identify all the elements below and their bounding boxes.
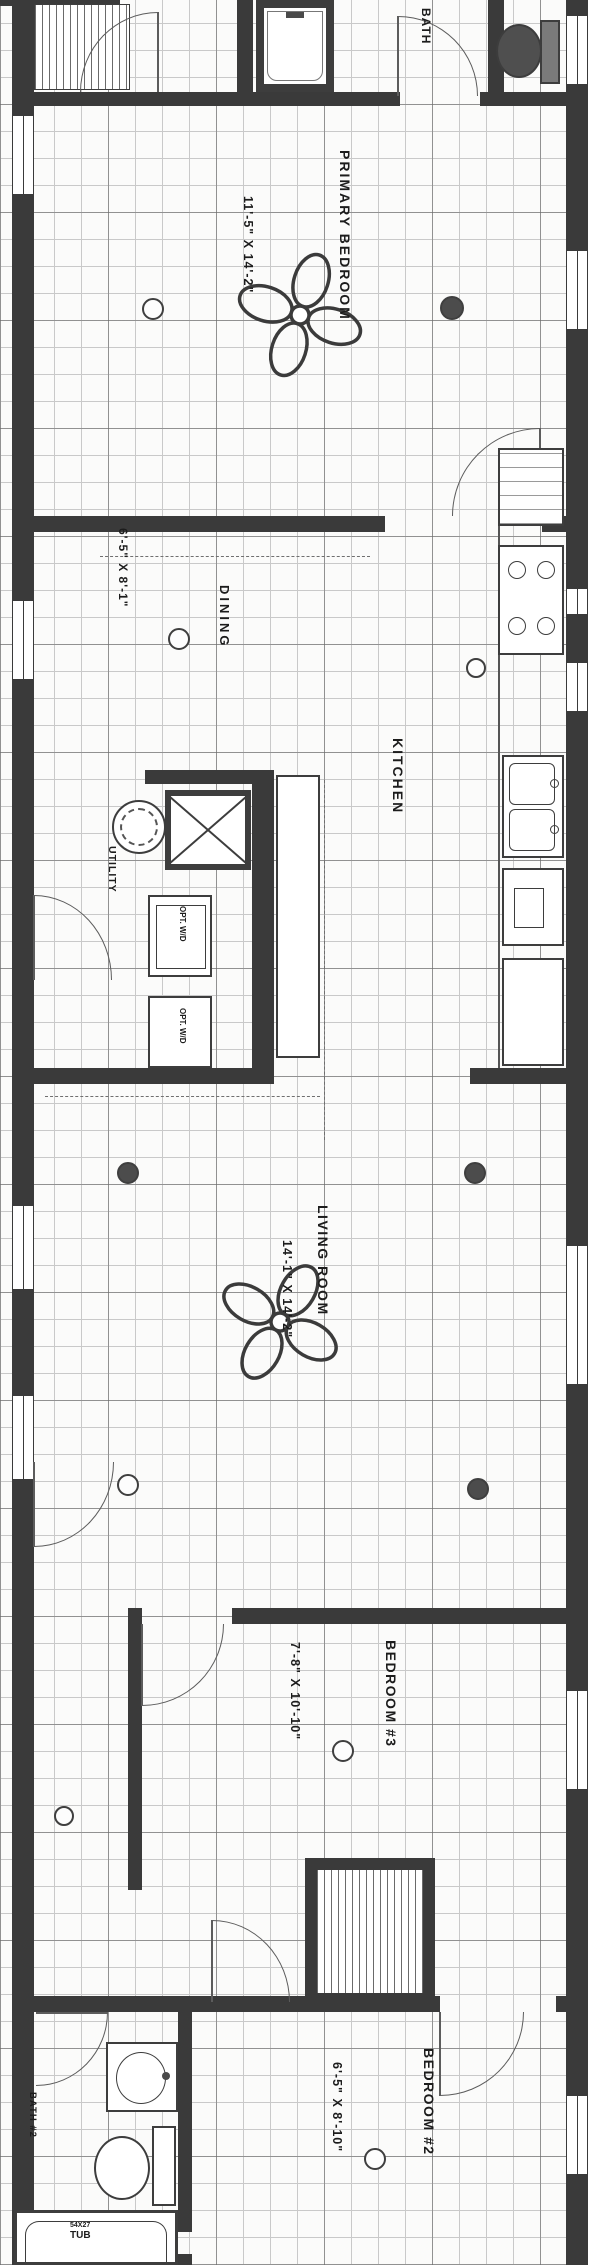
room-dims-living-room: 14'-1" X 14'-2" xyxy=(281,1240,294,1338)
closet-wall-bottom xyxy=(305,1993,435,2005)
room-label-dining: DINING xyxy=(218,585,231,649)
counter-edge xyxy=(498,448,500,1068)
door-leaf xyxy=(36,2012,108,2014)
ceiling-break-line xyxy=(100,556,370,557)
burner-icon xyxy=(508,561,526,579)
wall-bath-bedroom-right xyxy=(480,92,566,106)
window xyxy=(566,15,588,85)
refrigerator xyxy=(498,448,564,526)
window xyxy=(12,115,34,195)
shower-valve-icon xyxy=(286,12,304,18)
faucet-icon xyxy=(162,2072,170,2080)
furnace xyxy=(165,790,251,870)
wall-bedroom3-top xyxy=(232,1608,566,1624)
exterior-wall-left xyxy=(12,0,34,2265)
base-cabinet xyxy=(502,958,564,1066)
door-leaf xyxy=(439,2012,441,2096)
room-label-bedroom-3: BEDROOM #3 xyxy=(384,1640,398,1748)
exterior-wall-right xyxy=(566,0,588,2265)
closet-wall-left xyxy=(305,1858,317,2005)
room-label-bedroom-2: BEDROOM #2 xyxy=(422,2048,436,2156)
floor-plan-scan: BATH PRIMARY BEDROOM 11'-5" X 14'-2" DIN… xyxy=(0,0,600,2265)
dishwasher xyxy=(502,868,564,946)
window xyxy=(566,1245,588,1385)
ceiling-light-icon xyxy=(332,1740,354,1762)
toilet-tank-icon xyxy=(540,20,560,84)
wardrobe-closet xyxy=(317,1870,423,1993)
window xyxy=(566,1690,588,1790)
wall-utility-bottom xyxy=(12,1068,274,1084)
bathtub xyxy=(14,2210,178,2265)
room-dims-primary-bedroom: 11'-5" X 14'-2" xyxy=(242,196,255,293)
sink-basin-icon xyxy=(509,763,555,805)
ceiling-break-line xyxy=(45,1096,320,1097)
sink-basin-icon xyxy=(116,2052,166,2104)
sink-basin-icon xyxy=(509,809,555,851)
wall-bath-bedroom-left xyxy=(12,92,400,106)
closet-wall-top xyxy=(305,1858,435,1870)
shower-pan xyxy=(267,11,323,81)
ceiling-light-icon xyxy=(364,2148,386,2170)
door-leaf xyxy=(211,1920,213,2002)
door-leaf xyxy=(157,12,159,92)
tub-label: TUB xyxy=(70,2231,91,2241)
water-heater-icon xyxy=(112,800,166,854)
room-label-living-room: LIVING ROOM xyxy=(316,1205,330,1316)
tub-size-label: 54X27 xyxy=(70,2222,90,2229)
room-dims-bedroom-3: 7'-8" X 10'-10" xyxy=(289,1642,302,1740)
wall-closet-shower xyxy=(237,0,253,100)
ceiling-light-icon xyxy=(466,658,486,678)
kitchen-sink xyxy=(502,755,564,858)
window xyxy=(12,600,34,680)
right-margin xyxy=(588,0,600,2265)
door-leaf xyxy=(397,16,399,96)
washer-dryer-label: OPT. W/D xyxy=(178,906,186,942)
door-leaf xyxy=(141,1624,143,1706)
appliance-label-box xyxy=(514,888,544,928)
vanity-sink xyxy=(106,2042,178,2112)
window xyxy=(12,1395,34,1480)
ceiling-light-icon xyxy=(117,1162,139,1184)
bar-counter xyxy=(276,775,320,1058)
room-dims-bedroom-2: 6'-5" X 8'-10" xyxy=(331,2062,344,2152)
room-label-kitchen: KITCHEN xyxy=(391,738,405,814)
closet-wall-right xyxy=(423,1858,435,2005)
window xyxy=(566,662,588,712)
ceiling-light-icon xyxy=(54,1806,74,1826)
wall-utility-right xyxy=(252,770,274,1084)
ceiling-light-icon xyxy=(440,296,464,320)
faucet-icon xyxy=(550,825,559,834)
room-label-primary-bedroom: PRIMARY BEDROOM xyxy=(338,150,352,321)
shower xyxy=(256,0,334,92)
wall-kitchen-bottom xyxy=(470,1068,566,1084)
ceiling-light-icon xyxy=(467,1478,489,1500)
window xyxy=(566,250,588,330)
burner-icon xyxy=(537,561,555,579)
range xyxy=(498,545,564,655)
ceiling-light-icon xyxy=(117,1474,139,1496)
window xyxy=(12,1205,34,1290)
ceiling-light-icon xyxy=(464,1162,486,1184)
counter-overhang-line xyxy=(324,780,325,1140)
door-leaf xyxy=(33,895,35,980)
wall-bedroom-dining xyxy=(12,516,385,532)
room-label-utility: UTILITY xyxy=(107,846,118,893)
toilet-icon xyxy=(94,2136,150,2200)
faucet-icon xyxy=(550,779,559,788)
window xyxy=(566,2095,588,2175)
toilet-icon xyxy=(496,24,542,78)
burner-icon xyxy=(537,617,555,635)
wall-bedroom3-left xyxy=(128,1608,142,1890)
ceiling-light-icon xyxy=(142,298,164,320)
door-leaf xyxy=(33,1462,35,1547)
washer-dryer-label: OPT. W/D xyxy=(178,1008,186,1044)
wall-bath2-right xyxy=(178,2012,192,2232)
room-label-bath-2: BATH #2 xyxy=(28,2092,38,2138)
burner-icon xyxy=(508,617,526,635)
toilet-tank-icon xyxy=(152,2126,176,2206)
room-label-bath: BATH xyxy=(420,8,432,44)
room-dims-dining: 6'-5" X 8'-1" xyxy=(117,528,129,607)
ceiling-light-icon xyxy=(168,628,190,650)
water-heater-coil-icon xyxy=(120,808,158,846)
bathtub-rim xyxy=(25,2221,167,2265)
window xyxy=(566,588,588,615)
wall-bedroom2-top-stub xyxy=(556,1996,566,2012)
